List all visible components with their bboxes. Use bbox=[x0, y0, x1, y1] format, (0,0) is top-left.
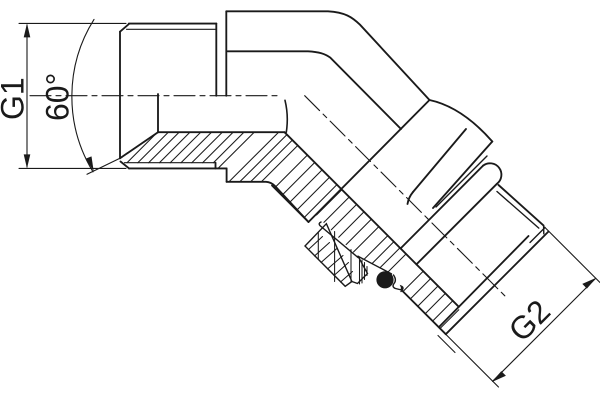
svg-text:G1: G1 bbox=[0, 77, 31, 120]
svg-text:G2: G2 bbox=[501, 293, 557, 349]
svg-text:60°: 60° bbox=[40, 73, 76, 121]
